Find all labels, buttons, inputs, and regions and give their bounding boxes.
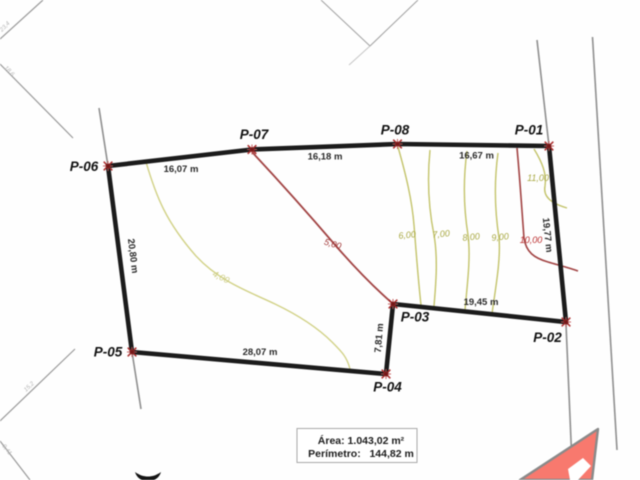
svg-text:Área: 1.043,02 m²: Área: 1.043,02 m² <box>318 434 405 447</box>
svg-text:Perímetro: 144,82 m: Perímetro: 144,82 m <box>308 448 414 460</box>
svg-text:6,00: 6,00 <box>398 229 416 241</box>
svg-text:P-03: P-03 <box>401 310 430 325</box>
svg-text:19,45 m: 19,45 m <box>464 297 499 308</box>
svg-text:28,07 m: 28,07 m <box>243 347 278 358</box>
svg-text:9,00: 9,00 <box>491 231 509 243</box>
svg-text:P-05: P-05 <box>94 345 123 360</box>
svg-text:16,07 m: 16,07 m <box>164 164 199 175</box>
svg-text:P-04: P-04 <box>373 380 402 395</box>
svg-text:P-07: P-07 <box>240 127 270 142</box>
svg-text:16,67 m: 16,67 m <box>459 151 494 162</box>
svg-text:P-02: P-02 <box>533 330 562 345</box>
svg-text:11,00: 11,00 <box>527 173 549 183</box>
svg-text:P-06: P-06 <box>70 159 99 174</box>
svg-text:P-01: P-01 <box>515 123 544 138</box>
svg-text:10,00: 10,00 <box>520 235 543 245</box>
svg-text:8,00: 8,00 <box>462 231 480 243</box>
svg-text:16,18 m: 16,18 m <box>308 152 343 163</box>
svg-text:7,00: 7,00 <box>432 228 450 240</box>
svg-text:P-08: P-08 <box>381 123 410 138</box>
